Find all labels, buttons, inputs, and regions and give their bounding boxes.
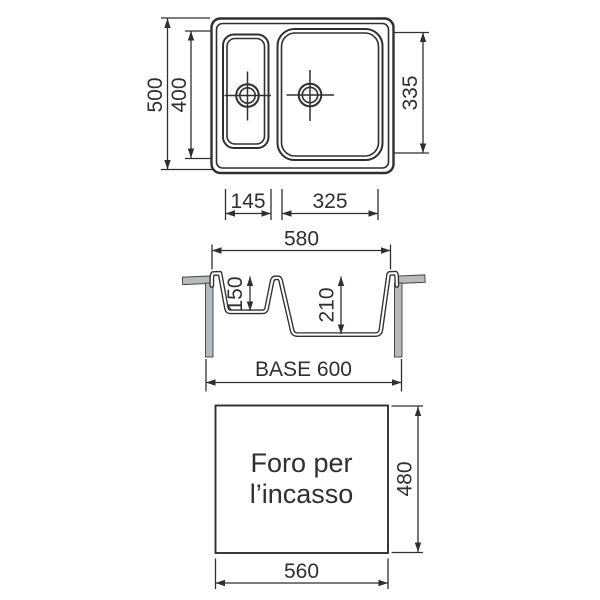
- dimension-base-600: BASE 600: [206, 358, 402, 392]
- dim-label-325: 325: [312, 190, 347, 213]
- plan-view: [212, 19, 394, 174]
- dim-label-480: 480: [394, 461, 417, 496]
- dim-label-335: 335: [399, 75, 422, 110]
- dim-label-400: 400: [168, 77, 191, 112]
- cutout-view: Foro per l’incasso: [216, 406, 389, 554]
- dimension-325: 325: [282, 189, 378, 220]
- countertop-right: [395, 275, 425, 284]
- dim-label-base-600: BASE 600: [255, 358, 352, 381]
- dimension-150: 150: [224, 276, 250, 311]
- dimension-480: 480: [392, 406, 424, 553]
- dimension-560: 560: [216, 559, 389, 590]
- dimension-145: 145: [226, 189, 272, 220]
- dimension-210: 210: [316, 277, 342, 335]
- cabinet-side-right: [395, 283, 403, 357]
- dim-label-500: 500: [144, 77, 167, 112]
- dim-label-210: 210: [316, 287, 339, 322]
- dim-label-580: 580: [284, 228, 319, 251]
- cabinet-side-left: [206, 283, 214, 357]
- cutout-label-line2: l’incasso: [250, 479, 354, 509]
- sink-technical-drawing: 500 400 335 145 325 580: [0, 0, 600, 600]
- dimension-335: 335: [395, 33, 430, 154]
- dim-label-145: 145: [230, 190, 265, 213]
- dim-label-150: 150: [224, 276, 247, 311]
- drawing-canvas: 500 400 335 145 325 580: [0, 0, 600, 600]
- dimension-580: 580: [212, 228, 391, 270]
- cutout-label-line1: Foro per: [250, 448, 352, 478]
- section-view: [182, 273, 425, 357]
- dimension-400: 400: [168, 31, 212, 159]
- dim-label-560: 560: [284, 560, 319, 583]
